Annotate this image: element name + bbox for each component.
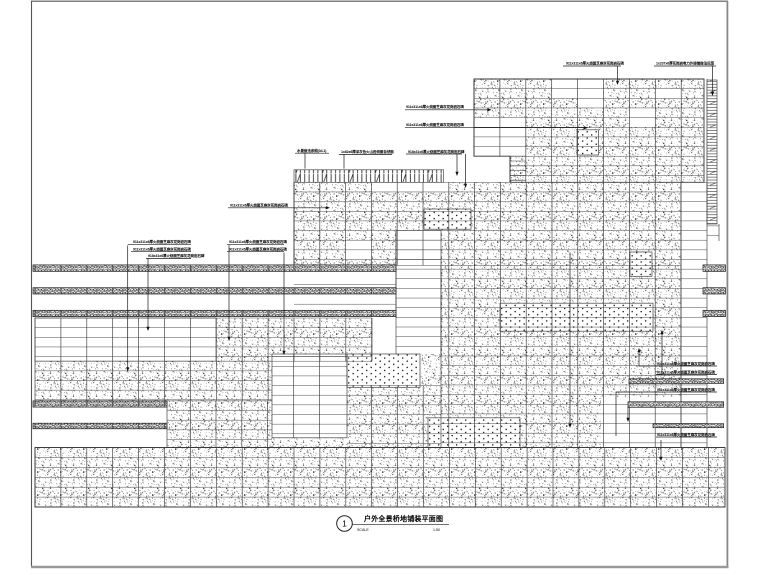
svg-text:SCALE: SCALE: [357, 528, 369, 532]
svg-text:911x311x6厚火烧面芝麻灰花岗岩石碑: 911x311x6厚火烧面芝麻灰花岗岩石碑: [657, 361, 715, 366]
svg-text:911x311x6厚火烧面芝麻灰花岗岩石碑: 911x311x6厚火烧面芝麻灰花岗岩石碑: [657, 387, 715, 392]
svg-text:1x82x6厚深灰色火山岩烧面自然面: 1x82x6厚深灰色火山岩烧面自然面: [341, 149, 394, 154]
svg-text:水景做法参照(04.1): 水景做法参照(04.1): [296, 148, 326, 153]
svg-text:911x311x6厚火烧面芝麻灰花岗岩石碑: 911x311x6厚火烧面芝麻灰花岗岩石碑: [406, 122, 464, 127]
svg-text:918x31x6厚火烧面芝麻灰花岗岩石碑: 918x31x6厚火烧面芝麻灰花岗岩石碑: [148, 253, 205, 258]
svg-text:911x311x6厚火烧面芝麻灰花岗岩石碑: 911x311x6厚火烧面芝麻灰花岗岩石碑: [657, 432, 715, 437]
svg-text:1x237x6厚花岗岩电力外接缝做法见图: 1x237x6厚花岗岩电力外接缝做法见图: [656, 61, 714, 66]
svg-text:911x311x6厚火烧面芝麻灰花岗岩石碑: 911x311x6厚火烧面芝麻灰花岗岩石碑: [657, 369, 715, 374]
svg-text:户外全景桥地铺装平面图: 户外全景桥地铺装平面图: [364, 514, 443, 523]
svg-text:911x311x6厚火烧面芝麻灰花岗岩石碑: 911x311x6厚火烧面芝麻灰花岗岩石碑: [229, 246, 287, 251]
svg-text:911x311x6厚火烧面芝麻灰花岗岩石碑: 911x311x6厚火烧面芝麻灰花岗岩石碑: [406, 104, 464, 109]
svg-text:911x311x6厚火烧面芝麻灰花岗岩石碑: 911x311x6厚火烧面芝麻灰花岗岩石碑: [229, 239, 287, 244]
svg-text:911x311x6厚火烧面芝麻灰花岗岩石碑: 911x311x6厚火烧面芝麻灰花岗岩石碑: [133, 239, 191, 244]
svg-text:1:50: 1:50: [433, 528, 440, 532]
svg-text:911x311x6厚火烧面芝麻灰花岗岩石碑: 911x311x6厚火烧面芝麻灰花岗岩石碑: [133, 246, 191, 251]
svg-text:918x31x6厚火烧面芝麻灰花岗岩石碑: 918x31x6厚火烧面芝麻灰花岗岩石碑: [408, 149, 465, 154]
svg-text:1: 1: [342, 519, 347, 529]
svg-text:911x311x6厚火烧面芝麻灰花岗岩石碑: 911x311x6厚火烧面芝麻灰花岗岩石碑: [566, 61, 624, 66]
svg-text:911x311x6厚火烧面芝麻灰花岗岩石碑: 911x311x6厚火烧面芝麻灰花岗岩石碑: [230, 202, 288, 207]
